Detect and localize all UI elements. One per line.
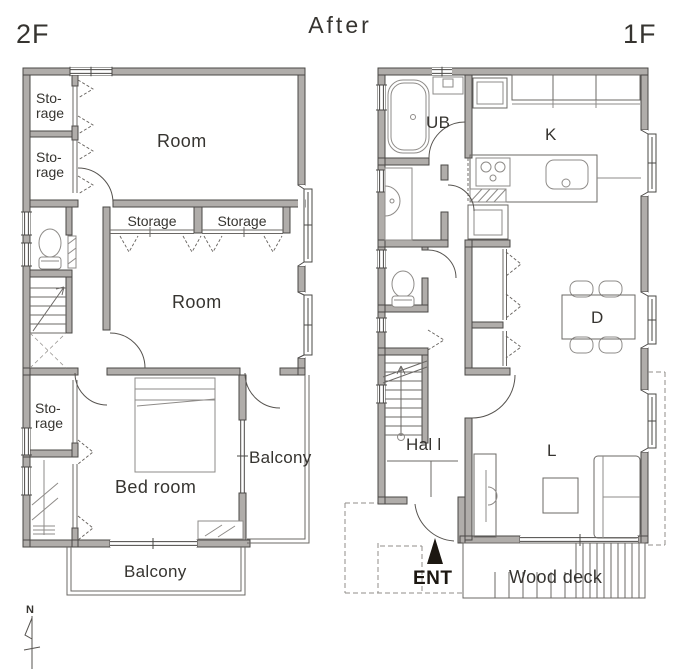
plan-2f: Sto- rage Sto- rage Room Storage Storage… [21,67,312,595]
stove-icon [476,158,510,186]
closet-fronts-1f [503,249,507,366]
window-2f-top [70,67,112,76]
kitchen-wall-cabinet [473,75,640,108]
window-2f-bedroom-right [237,420,248,493]
range-hatch [470,189,506,202]
label-hall: Hal l [406,435,442,454]
washbasin-icon [385,168,412,240]
label-room-lower: Room [172,292,222,312]
label-storage-top-2: rage [36,105,64,121]
page-title: After [308,12,372,38]
window-1f-living-bottom [520,534,638,546]
label-storage-top-1: Sto- [36,90,62,106]
bay-window-2f-lower [298,292,312,358]
toilet-icon-1f [392,271,414,307]
floorplan-drawing: 2F After 1F [0,0,680,669]
sofa-icon [594,456,640,538]
tv-board-icon [474,454,497,537]
label-entrance: ENT [413,568,453,589]
label-room-upper: Room [157,131,207,151]
label-balcony-side: Balcony [249,448,312,467]
sliding-door-2f-toilet [68,236,76,268]
bedroom-cabinet-icon [198,521,243,539]
floor-label-2f: 2F [16,19,50,49]
entrance-arrow-icon [427,538,443,564]
bay-window-kitchen [641,130,656,196]
label-living: L [547,441,557,460]
floorplan-canvas: 2F After 1F [0,0,680,669]
label-bedroom: Bed room [115,477,196,497]
window-2f-bedroom-bottom [110,538,197,549]
bay-window-living [641,390,656,452]
kitchen-sink-icon [546,160,588,189]
plan-1f: UB K D L Hal l ENT Wood deck [345,67,665,598]
entrance-step-lines [387,461,458,497]
label-closet-b: Storage [217,213,266,229]
label-storage-low-1: Sto- [35,400,61,416]
label-storage-mid-1: Sto- [36,149,62,165]
label-dining: D [591,308,604,327]
bay-window-2f-upper [298,185,312,266]
label-storage-mid-2: rage [36,164,64,180]
closet-hanger-2f [32,460,58,535]
floor-label-1f: 1F [623,19,657,49]
stairs-2f [30,287,66,368]
bay-window-dining [641,292,656,348]
label-kitchen: K [545,125,557,144]
label-north: N [26,604,34,616]
toilet-icon-2f [39,229,61,269]
coffee-table-icon [543,478,578,513]
label-unit-bath: UB [426,113,450,132]
label-storage-low-2: rage [35,415,63,431]
north-compass-icon: N [24,604,40,669]
folding-door-marks-1f [428,252,521,358]
stairs-1f [383,361,427,441]
label-wood-deck: Wood deck [509,567,603,587]
bed-icon [135,378,215,472]
window-1f-top [432,67,452,76]
bathtub-icon [388,80,429,153]
label-balcony-bottom: Balcony [124,562,187,581]
bath-sink-icon [433,77,463,94]
label-closet-a: Storage [127,213,176,229]
